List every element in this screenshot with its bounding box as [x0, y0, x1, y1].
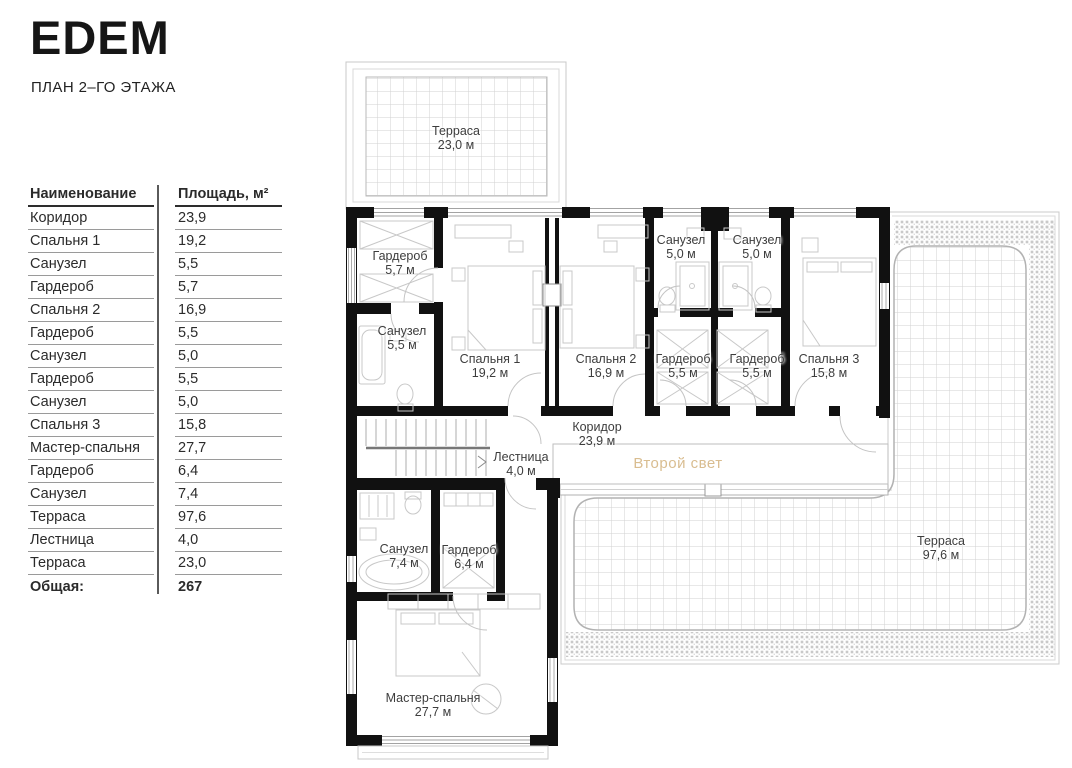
room-label-stairs: Лестница4,0 м	[493, 450, 548, 478]
floor-plan-drawing	[0, 0, 1072, 768]
room-label-second-light: Второй свет	[633, 457, 722, 471]
room-area: 6,4 м	[442, 557, 497, 571]
room-area: 16,9 м	[576, 366, 637, 380]
room-area: 19,2 м	[460, 366, 521, 380]
room-label-wardrobe-5-7: Гардероб5,7 м	[373, 249, 428, 277]
room-name: Санузел	[733, 233, 782, 247]
room-name: Санузел	[378, 324, 427, 338]
room-label-master-bedroom: Мастер-спальня27,7 м	[386, 691, 481, 719]
room-name: Спальня 2	[576, 352, 637, 366]
room-area: 7,4 м	[380, 556, 429, 570]
room-area: 5,5 м	[730, 366, 785, 380]
room-name: Второй свет	[633, 457, 722, 471]
room-name: Коридор	[572, 420, 621, 434]
room-label-wardrobe-5-5-right: Гардероб5,5 м	[730, 352, 785, 380]
room-area: 5,0 м	[657, 247, 706, 261]
room-label-wardrobe-5-5-left: Гардероб5,5 м	[656, 352, 711, 380]
room-name: Санузел	[380, 542, 429, 556]
terrace-main-shape	[560, 212, 1059, 664]
room-area: 27,7 м	[386, 705, 481, 719]
room-area: 23,9 м	[572, 434, 621, 448]
room-name: Спальня 1	[460, 352, 521, 366]
room-label-bedroom-1: Спальня 119,2 м	[460, 352, 521, 380]
floor-plan-page: EDEM ПЛАН 2–ГО ЭТАЖА Наименование Площад…	[0, 0, 1072, 768]
room-name: Терраса	[917, 534, 965, 548]
room-label-bedroom-2: Спальня 216,9 м	[576, 352, 637, 380]
room-label-bathroom-5-0-left: Санузел5,0 м	[657, 233, 706, 261]
room-area: 4,0 м	[493, 464, 548, 478]
room-label-bedroom-3: Спальня 315,8 м	[799, 352, 860, 380]
room-label-bathroom-7-4: Санузел7,4 м	[380, 542, 429, 570]
room-area: 5,7 м	[373, 263, 428, 277]
room-area: 5,0 м	[733, 247, 782, 261]
room-name: Гардероб	[373, 249, 428, 263]
room-label-bathroom-5-5: Санузел5,5 м	[378, 324, 427, 352]
room-area: 97,6 м	[917, 548, 965, 562]
room-label-corridor: Коридор23,9 м	[572, 420, 621, 448]
room-name: Спальня 3	[799, 352, 860, 366]
room-name: Гардероб	[656, 352, 711, 366]
room-label-wardrobe-6-4: Гардероб6,4 м	[442, 543, 497, 571]
room-name: Санузел	[657, 233, 706, 247]
room-area: 5,5 м	[378, 338, 427, 352]
room-label-terrace-main: Терраса97,6 м	[917, 534, 965, 562]
room-name: Лестница	[493, 450, 548, 464]
room-area: 23,0 м	[432, 138, 480, 152]
room-name: Мастер-спальня	[386, 691, 481, 705]
room-name: Гардероб	[442, 543, 497, 557]
room-label-terrace-top: Терраса23,0 м	[432, 124, 480, 152]
room-label-bathroom-5-0-right: Санузел5,0 м	[733, 233, 782, 261]
room-name: Терраса	[432, 124, 480, 138]
room-area: 5,5 м	[656, 366, 711, 380]
stairs-shape	[366, 419, 490, 476]
room-area: 15,8 м	[799, 366, 860, 380]
room-name: Гардероб	[730, 352, 785, 366]
